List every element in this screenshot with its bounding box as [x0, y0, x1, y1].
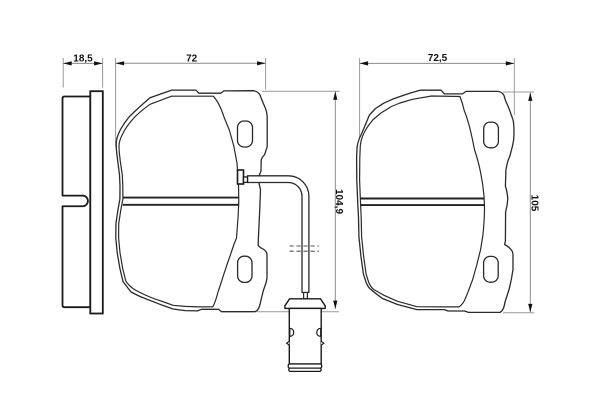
svg-text:104,9: 104,9 — [333, 189, 344, 214]
svg-text:18,5: 18,5 — [73, 53, 93, 64]
svg-text:72,5: 72,5 — [428, 53, 448, 64]
svg-text:72: 72 — [186, 53, 198, 64]
svg-text:105: 105 — [529, 195, 540, 212]
